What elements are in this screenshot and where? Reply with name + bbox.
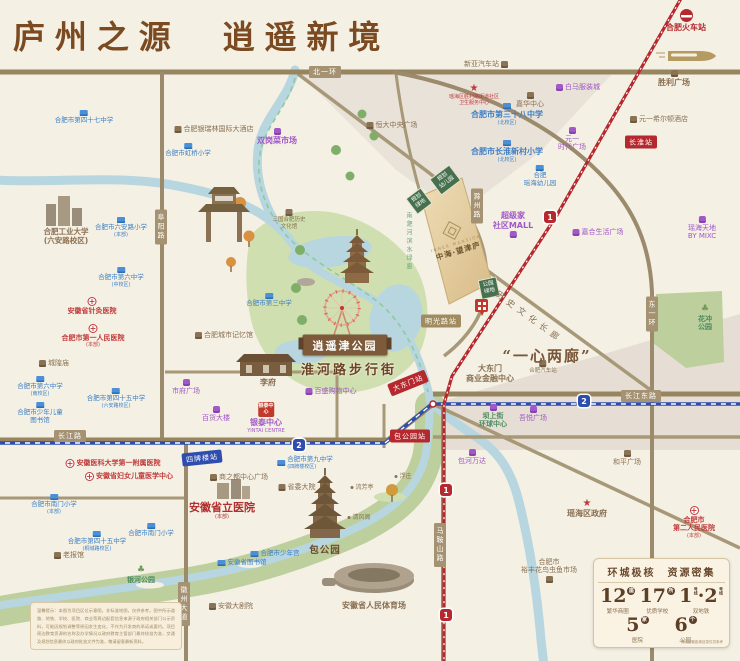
page-title: 庐州之源 逍遥新境	[13, 12, 390, 58]
stats-note: *周边配套距离信息仅供参考	[679, 640, 723, 645]
location-map-poster: 合肥市第四十七中学合肥市虹桥小学合肥市第三十八中学(北校区)合肥市长淮新村小学(…	[0, 0, 740, 661]
huaihe-pedestrian-street-label: 淮河路步行街	[301, 359, 397, 378]
one-heart-two-corridors-label: “一心两廊”	[502, 345, 591, 366]
river-corridor-label: 南淝河滨水绿廊	[404, 212, 413, 272]
disclaimer-box: 温馨提示：本图为项目区位示意图，非标准地图，仅供参考。图中所示道路、地铁、学校、…	[30, 602, 182, 650]
feature-overlay-layer: 庐州之源 逍遥新境 INNER MANSION 中海·望津庐 南淝河滨水绿廊 历…	[0, 0, 740, 661]
stats-title: 环城极核 资源密集	[598, 564, 725, 583]
stat-business-circles: 12座 繁华商圈	[600, 587, 635, 615]
stats-panel: 环城极核 资源密集 12座 繁华商圈 17所 优质学校 1号线·2号线 双地铁 …	[593, 558, 730, 648]
project-pin-icon	[475, 299, 488, 312]
stats-row-1: 12座 繁华商圈 17所 优质学校 1号线·2号线 双地铁	[598, 587, 725, 615]
history-corridor-label: 历史文化长廊	[493, 288, 566, 345]
project-logo-icon	[443, 221, 462, 240]
stat-metro-lines: 1号线·2号线 双地铁	[679, 587, 723, 615]
stat-schools: 17所 优质学校	[640, 587, 675, 615]
project-label: INNER MANSION 中海·望津庐	[425, 216, 485, 264]
stat-hospitals: 5家 医院	[626, 616, 648, 644]
xiaoyaojin-park-ribbon: 逍遥津公园	[303, 335, 388, 356]
